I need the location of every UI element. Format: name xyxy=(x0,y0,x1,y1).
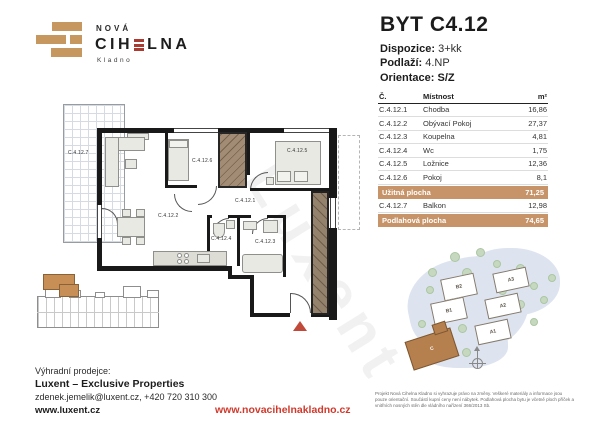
stove-burner xyxy=(184,259,189,264)
site-plan: B2 B1 A3 A2 A1 C xyxy=(398,240,578,375)
door-arc xyxy=(198,186,217,205)
sink xyxy=(226,220,235,229)
tree-icon xyxy=(530,282,538,290)
chair xyxy=(122,237,131,245)
unit-specs: Dispozice: 3+kk Podlaží: 4.NP Orientace:… xyxy=(380,40,462,84)
seller-contact[interactable]: zdenek.jemelik@luxent.cz, +420 720 310 3… xyxy=(35,392,217,402)
floor-plan-sheet: NOVÁ CIH LNA Kladno BYT C4.12 Dispozice:… xyxy=(0,0,600,423)
stove-burner xyxy=(177,259,182,264)
balcony-door-window xyxy=(330,198,336,228)
pillow xyxy=(294,171,308,182)
side-table xyxy=(125,159,137,169)
project-website-link[interactable]: www.novacihelnakladno.cz xyxy=(215,404,351,416)
window xyxy=(284,128,331,133)
wall xyxy=(237,218,240,266)
room-label-bedroom: C.4.12.5 xyxy=(287,148,308,154)
tree-icon xyxy=(462,348,471,357)
bathtub xyxy=(242,254,283,273)
tree-icon xyxy=(428,268,437,277)
logo-lna: LNA xyxy=(147,36,190,54)
tree-icon xyxy=(418,320,426,328)
wall xyxy=(247,133,250,175)
seller-name: Luxent – Exclusive Properties xyxy=(35,378,184,390)
room-label-hall: C.4.12.1 xyxy=(235,198,256,204)
wall xyxy=(250,275,254,317)
compass-crossbar xyxy=(469,363,486,364)
logo-line-cihelna: CIH LNA xyxy=(95,36,190,54)
tree-icon xyxy=(540,296,548,304)
spec-podlazi: Podlaží: 4.NP xyxy=(380,57,462,69)
kitchen-counter xyxy=(153,251,227,266)
chair xyxy=(136,237,145,245)
tree-icon xyxy=(458,324,467,333)
table-row: C.4.12.4Wc1,75 xyxy=(378,144,548,158)
floor-overview-section xyxy=(123,286,141,298)
stove-burner xyxy=(177,253,182,258)
table-row: C.4.12.6Pokoj8,1 xyxy=(378,171,548,185)
wall xyxy=(165,185,197,188)
room-label-bath: C.4.12.3 xyxy=(255,239,276,245)
summary-useful-area: Užitná plocha71,25 xyxy=(378,186,548,199)
room-label-wc: C.4.12.4 xyxy=(211,236,232,242)
window xyxy=(174,128,218,133)
room-label-living: C.4.12.2 xyxy=(158,213,179,219)
nightstand xyxy=(266,177,274,185)
dining-table xyxy=(117,217,145,237)
tree-icon xyxy=(476,248,485,257)
table-row: C.4.12.5Ložnice12,36 xyxy=(378,158,548,172)
sofa xyxy=(105,137,119,187)
tree-icon xyxy=(450,252,460,262)
stove-burner xyxy=(184,253,189,258)
room-table-header: Č. Místnost m² xyxy=(378,90,548,104)
wall xyxy=(250,313,290,317)
door-arc xyxy=(174,194,192,212)
disclaimer: Projekt Nová Cihelna Kladno si vyhrazuje… xyxy=(375,391,575,421)
wall xyxy=(329,128,337,198)
seller-label: Výhradní prodejce: xyxy=(35,366,111,376)
tree-icon xyxy=(548,274,556,282)
tree-icon xyxy=(426,286,434,294)
logo-e-bars-icon xyxy=(134,39,144,51)
wall xyxy=(97,133,102,205)
spec-dispozice: Dispozice: 3+kk xyxy=(380,43,462,55)
room-label-balcony: C.4.12.7 xyxy=(68,150,89,156)
floor-overview xyxy=(35,268,165,332)
room-table: Č. Místnost m² C.4.12.1Chodba16,86 C.4.1… xyxy=(378,90,548,228)
spec-orientace: Orientace: S/Z xyxy=(380,72,462,84)
pillow xyxy=(169,140,188,148)
unit-title: BYT C4.12 xyxy=(380,13,488,37)
seller-website-link[interactable]: www.luxent.cz xyxy=(35,405,100,416)
building-c-wing xyxy=(432,321,449,336)
floor-overview-section xyxy=(95,292,105,298)
chair xyxy=(122,209,131,217)
building-c-label: C xyxy=(429,346,434,353)
built-in-wardrobe xyxy=(218,132,247,188)
wall xyxy=(283,215,286,277)
washing-machine xyxy=(263,220,278,233)
table-row-balcony: C.4.12.7Balkon12,98 xyxy=(378,200,548,214)
logo-line-nova: NOVÁ xyxy=(96,24,131,33)
logo-city: Kladno xyxy=(97,57,132,64)
chair xyxy=(136,209,145,217)
sink xyxy=(243,221,257,230)
tree-icon xyxy=(493,260,501,268)
room-label-room: C.4.12.6 xyxy=(192,158,213,164)
table-row: C.4.12.2Obývací Pokoj27,37 xyxy=(378,117,548,131)
brand-bricks-icon xyxy=(36,22,84,62)
staircase-shaft xyxy=(311,191,329,315)
neighbor-balcony-outline xyxy=(338,135,360,230)
entry-marker-icon xyxy=(293,321,307,331)
kitchen-sink xyxy=(197,254,210,263)
table-row: C.4.12.3Koupelna4,81 xyxy=(378,131,548,145)
floor-overview-line xyxy=(37,312,159,313)
tree-icon xyxy=(530,318,538,326)
wall xyxy=(329,228,337,320)
table-row: C.4.12.1Chodba16,86 xyxy=(378,104,548,118)
logo-cih: CIH xyxy=(95,36,133,54)
floor-overview-section xyxy=(147,290,159,298)
pillow xyxy=(277,171,291,182)
summary-floor-area: Podlahová plocha74,65 xyxy=(378,214,548,227)
highlighted-unit xyxy=(59,284,79,297)
